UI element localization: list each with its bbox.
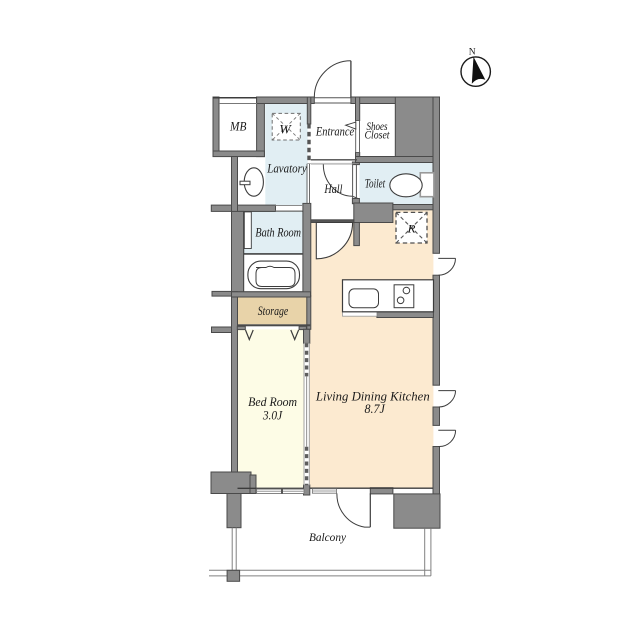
- svg-text:Toilet: Toilet: [365, 177, 386, 191]
- svg-text:3.0J: 3.0J: [262, 408, 283, 423]
- svg-text:Closet: Closet: [365, 130, 391, 142]
- svg-text:8.7J: 8.7J: [365, 401, 386, 416]
- svg-text:Lavatory: Lavatory: [266, 162, 307, 176]
- svg-text:N: N: [469, 48, 476, 58]
- svg-text:Bath Room: Bath Room: [255, 225, 301, 239]
- svg-text:Hall: Hall: [324, 182, 343, 196]
- svg-text:Storage: Storage: [258, 304, 289, 318]
- svg-text:W: W: [279, 122, 292, 137]
- svg-text:MB: MB: [229, 120, 247, 134]
- svg-text:Balcony: Balcony: [309, 530, 347, 544]
- svg-text:R: R: [406, 224, 415, 236]
- svg-text:Entrance: Entrance: [315, 124, 355, 138]
